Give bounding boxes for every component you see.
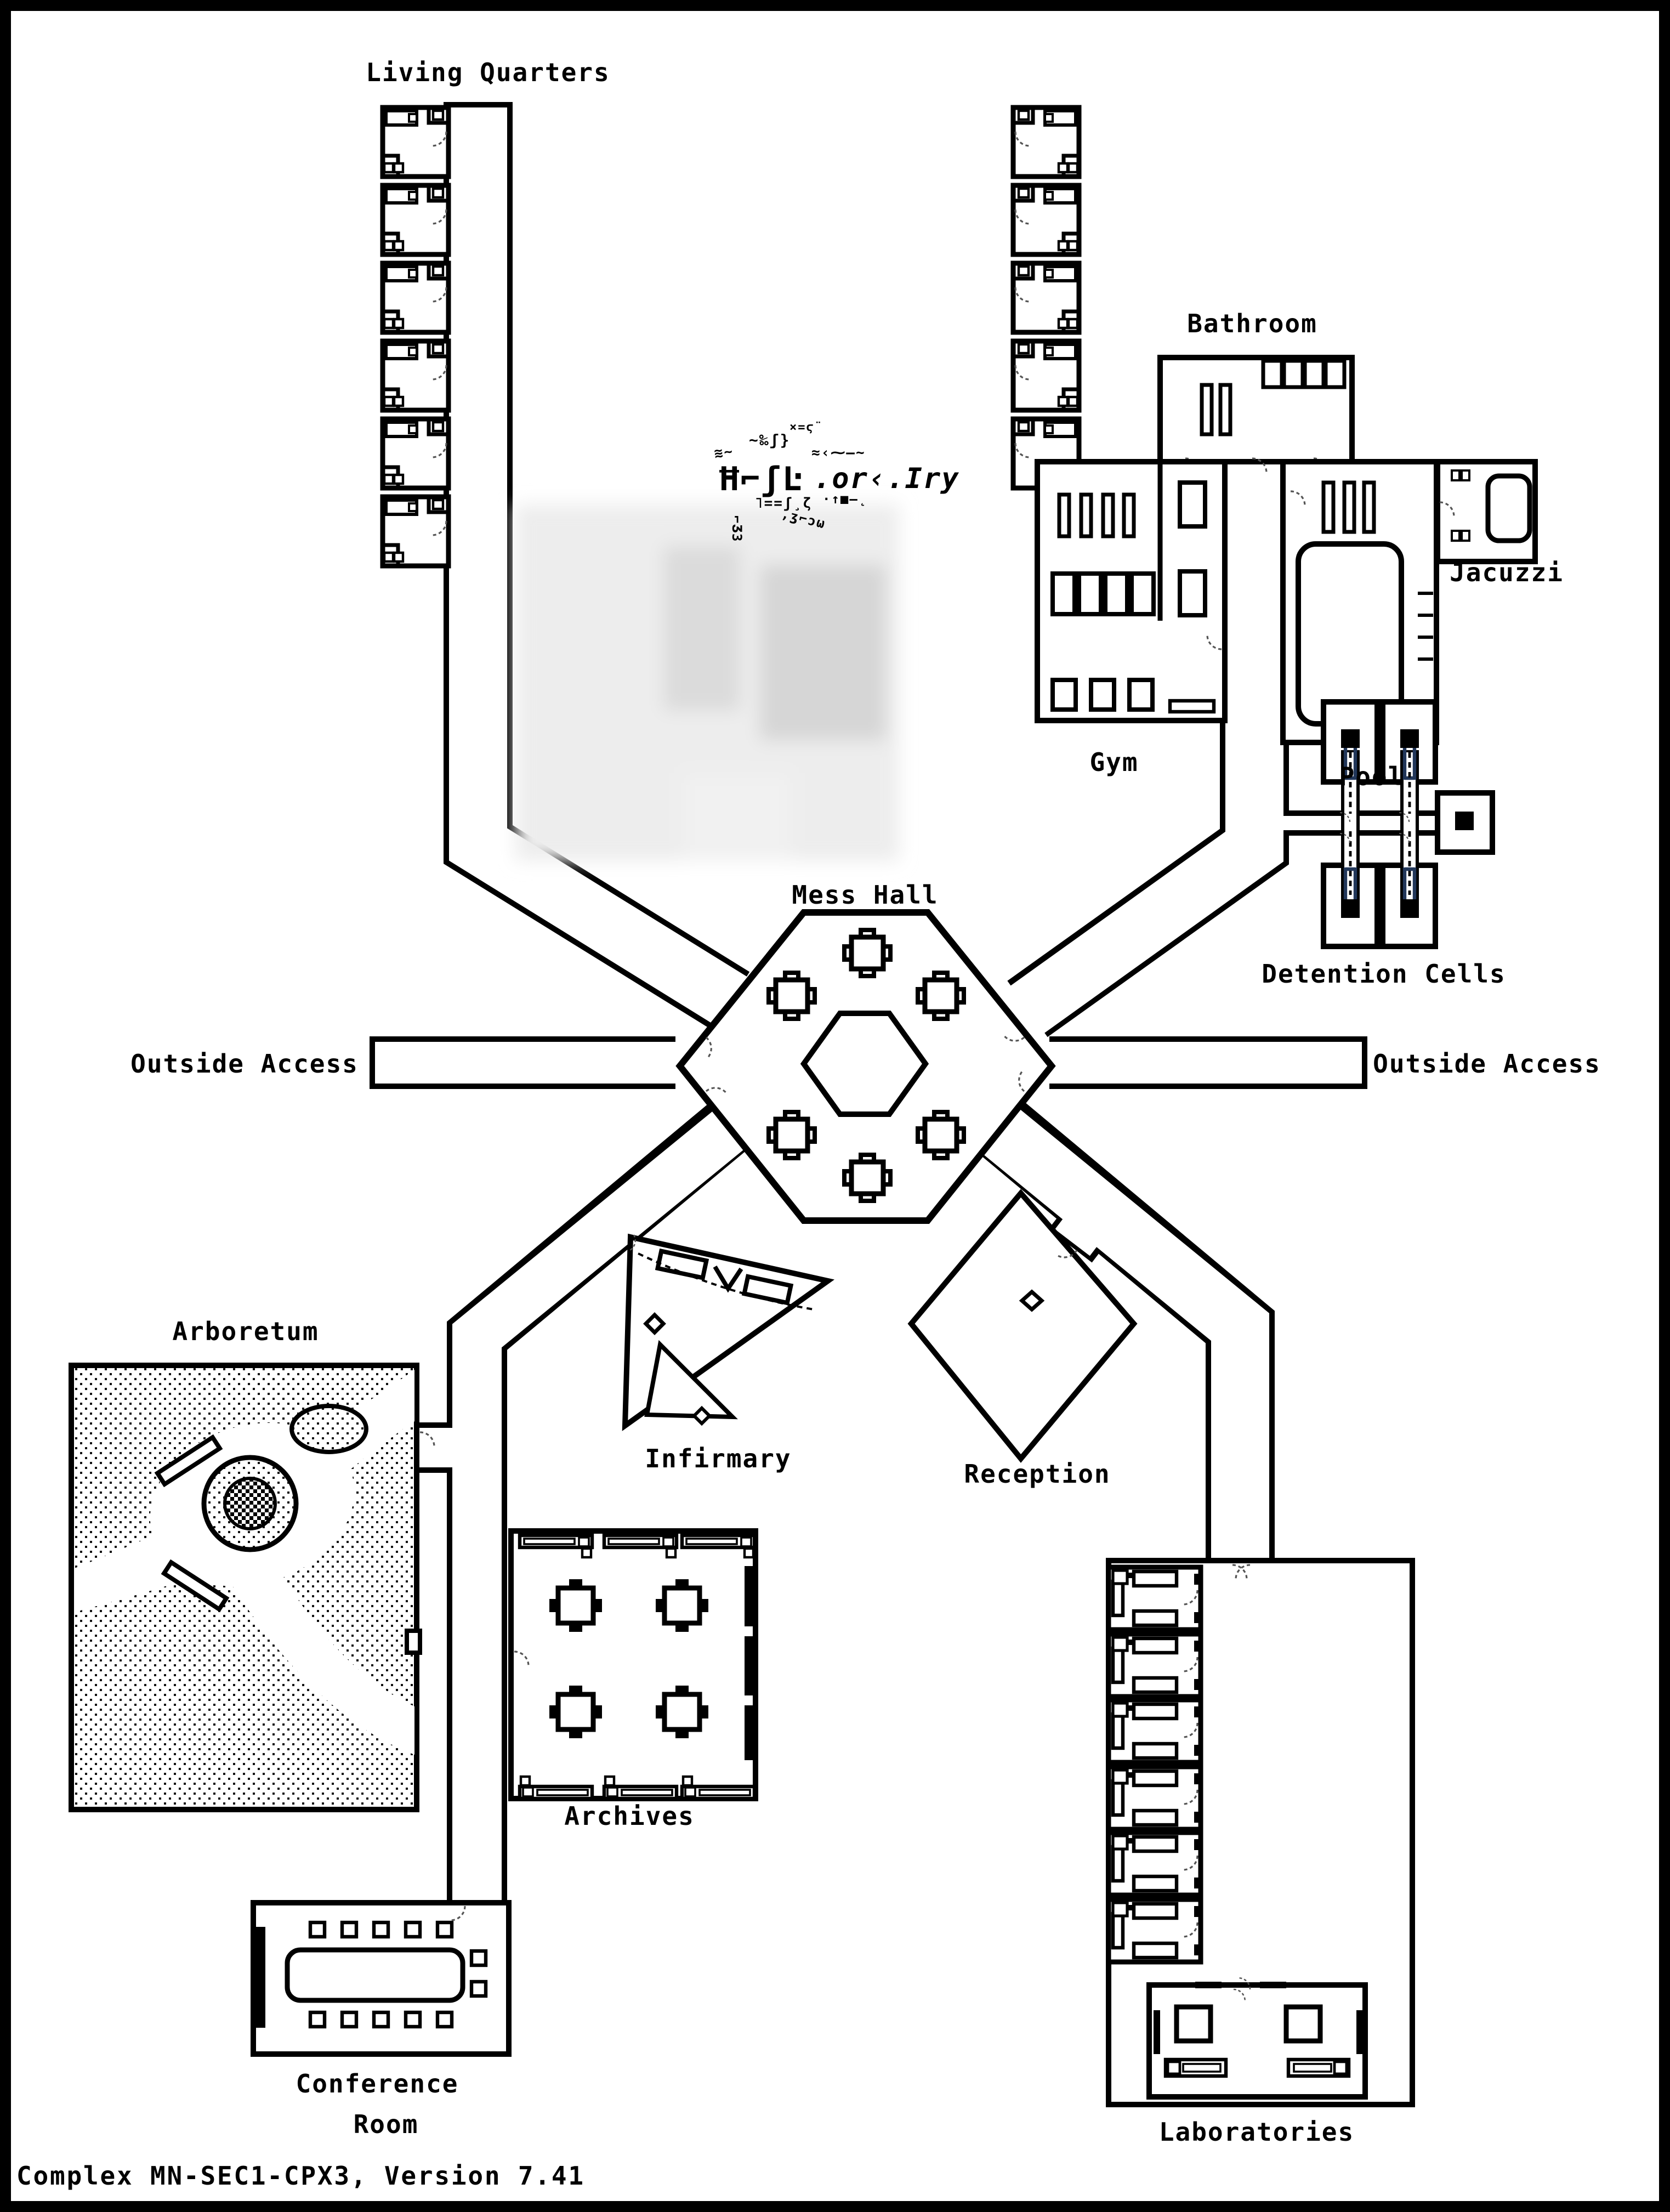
label-bathroom: Bathroom xyxy=(1187,309,1317,338)
glitch-fragment: ≈‹⁓—~ xyxy=(811,445,866,461)
conference-screen xyxy=(255,1927,265,2028)
laboratories-main-lab xyxy=(1149,1978,1365,2097)
arboretum-pond xyxy=(292,1406,366,1452)
label-laboratories: Laboratories xyxy=(1159,2117,1354,2147)
label-living-quarters: Living Quarters xyxy=(366,58,610,87)
glitch-fragment: .or‹.Iry xyxy=(814,462,959,495)
room-gym xyxy=(1037,462,1225,721)
label-gym: Gym xyxy=(1089,747,1138,777)
glitch-fragment: ⌐Ʒ3 xyxy=(729,515,745,542)
redacted-blur xyxy=(515,504,899,861)
glitch-fragment: ×=ϛ¨ xyxy=(789,421,823,434)
label-infirmary: Infirmary xyxy=(645,1444,791,1473)
label-reception: Reception xyxy=(964,1459,1110,1489)
glitch-fragment: ≋~ xyxy=(713,443,735,462)
label-conference-room-line1: Conference xyxy=(296,2069,459,2098)
arboretum-gate xyxy=(407,1631,420,1653)
facility-map: ≋~ ~‰ʃ} ×=ϛ¨ ≈‹⁓—~ Ħ⌐ʃĿ .or‹.Iry ⌐Ʒ3 ˥==… xyxy=(0,0,1670,2212)
room-arboretum xyxy=(71,1365,434,1810)
room-archives xyxy=(511,1531,756,1799)
label-mess-hall: Mess Hall xyxy=(792,880,938,910)
label-pool: Pool xyxy=(1339,762,1405,791)
room-jacuzzi xyxy=(1438,462,1535,561)
room-conference xyxy=(253,1903,509,2054)
glitch-fragment: Ħ⌐ʃĿ xyxy=(719,460,803,498)
glitch-fragment: ~‰ʃ} xyxy=(749,431,790,449)
label-jacuzzi: Jacuzzi xyxy=(1450,558,1564,587)
room-bathroom xyxy=(1160,358,1352,473)
label-detention-cells: Detention Cells xyxy=(1262,959,1506,989)
label-arboretum: Arboretum xyxy=(172,1317,319,1346)
label-conference-room-line2: Room xyxy=(354,2109,419,2139)
label-outside-access-right: Outside Access xyxy=(1373,1049,1601,1079)
label-outside-access-left: Outside Access xyxy=(130,1049,359,1079)
map-title: Complex MN-SEC1-CPX3, Version 7.41 xyxy=(16,2161,585,2191)
glitch-fragment: ·↑■—˛ xyxy=(822,491,867,507)
label-archives: Archives xyxy=(564,1801,695,1831)
